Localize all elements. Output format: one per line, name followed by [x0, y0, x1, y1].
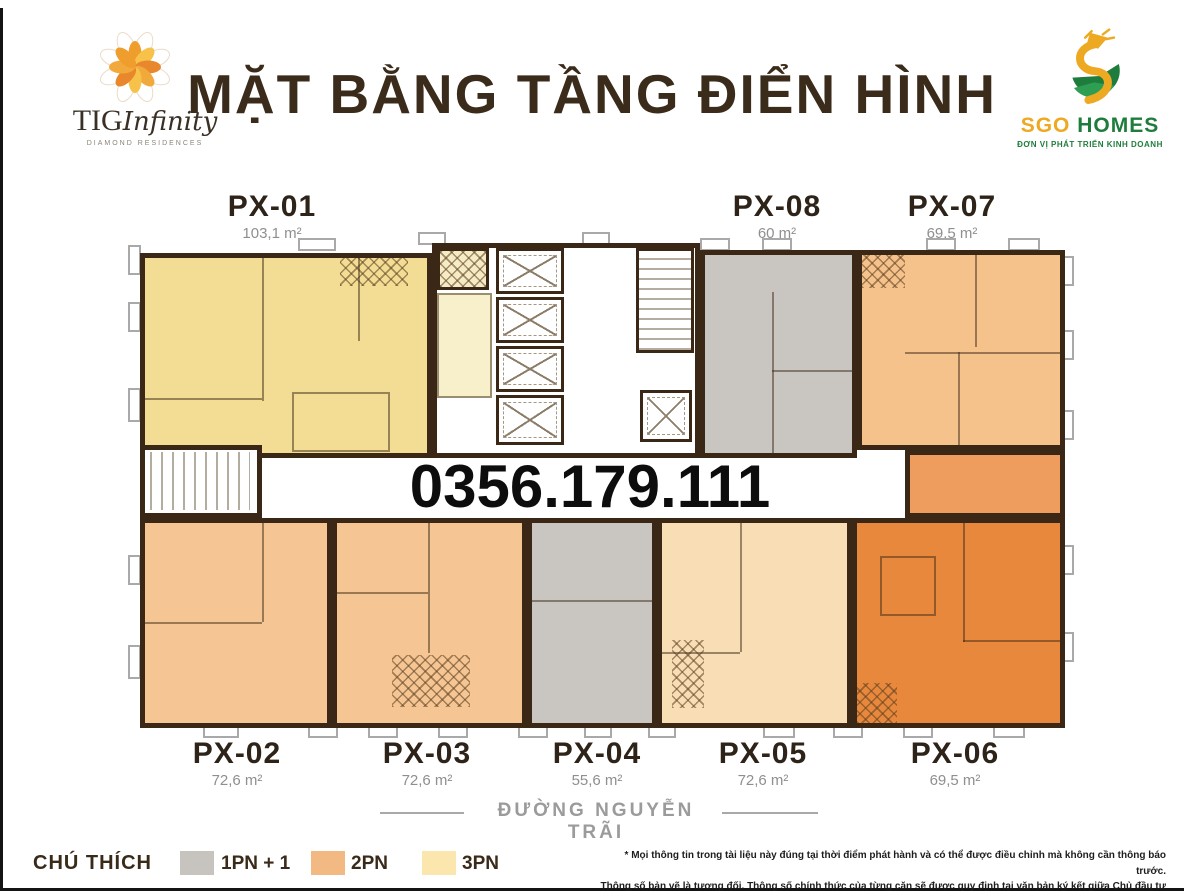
legend-label-1pn1: 1PN + 1 [221, 853, 290, 875]
legend-swatch-1pn1 [180, 851, 214, 875]
unit-label-px01: PX-01103,1 m² [192, 190, 352, 242]
street-divider-right [722, 812, 818, 814]
dragon-globe-icon [1050, 28, 1130, 117]
legend-swatch-2pn [311, 851, 345, 875]
unit-px06-upper [905, 450, 1065, 518]
stairwell-steps [150, 452, 250, 510]
unit-label-px05: PX-0572,6 m² [683, 737, 843, 789]
floorplan-poster: TIGInfinity DIAMOND RESIDENCES MẶT BẰNG … [0, 0, 1184, 891]
unit-label-px03: PX-0372,6 m² [347, 737, 507, 789]
core-lobby [437, 293, 492, 398]
street-name: ĐƯỜNG NGUYỄN TRÃI [466, 800, 726, 844]
sgo-tagline: ĐƠN VỊ PHÁT TRIỂN KINH DOANH [1002, 140, 1178, 149]
street-divider-left [380, 812, 464, 814]
unit-px08 [700, 250, 857, 458]
unit-label-px02: PX-0272,6 m² [157, 737, 317, 789]
core-entry-hatch [437, 248, 489, 290]
unit-label-px04: PX-0455,6 m² [517, 737, 677, 789]
sgo-wordmark: SGO HOMES [1002, 114, 1178, 138]
legend-label-2pn: 2PN [351, 853, 388, 875]
unit-px04 [527, 518, 657, 728]
sgo-homes-logo: SGO HOMES ĐƠN VỊ PHÁT TRIỂN KINH DOANH [1002, 28, 1178, 160]
hotline-number: 0356.179.111 [350, 452, 830, 521]
legend-swatch-3pn [422, 851, 456, 875]
disclaimer-line1: * Mọi thông tin trong tài liệu này đúng … [600, 848, 1166, 879]
core-stairs [636, 248, 694, 353]
disclaimer-line2: Thông số bản vẽ là tương đối. Thông số c… [600, 879, 1166, 891]
legend-title: CHÚ THÍCH [33, 852, 152, 875]
unit-label-px06: PX-0669,5 m² [875, 737, 1035, 789]
disclaimer-text: * Mọi thông tin trong tài liệu này đúng … [600, 848, 1166, 891]
unit-label-px08: PX-0860 m² [697, 190, 857, 242]
legend-label-3pn: 3PN [462, 853, 499, 875]
page-edge-left [0, 8, 3, 891]
unit-label-px07: PX-0769,5 m² [872, 190, 1032, 242]
tig-tagline: DIAMOND RESIDENCES [40, 140, 250, 147]
